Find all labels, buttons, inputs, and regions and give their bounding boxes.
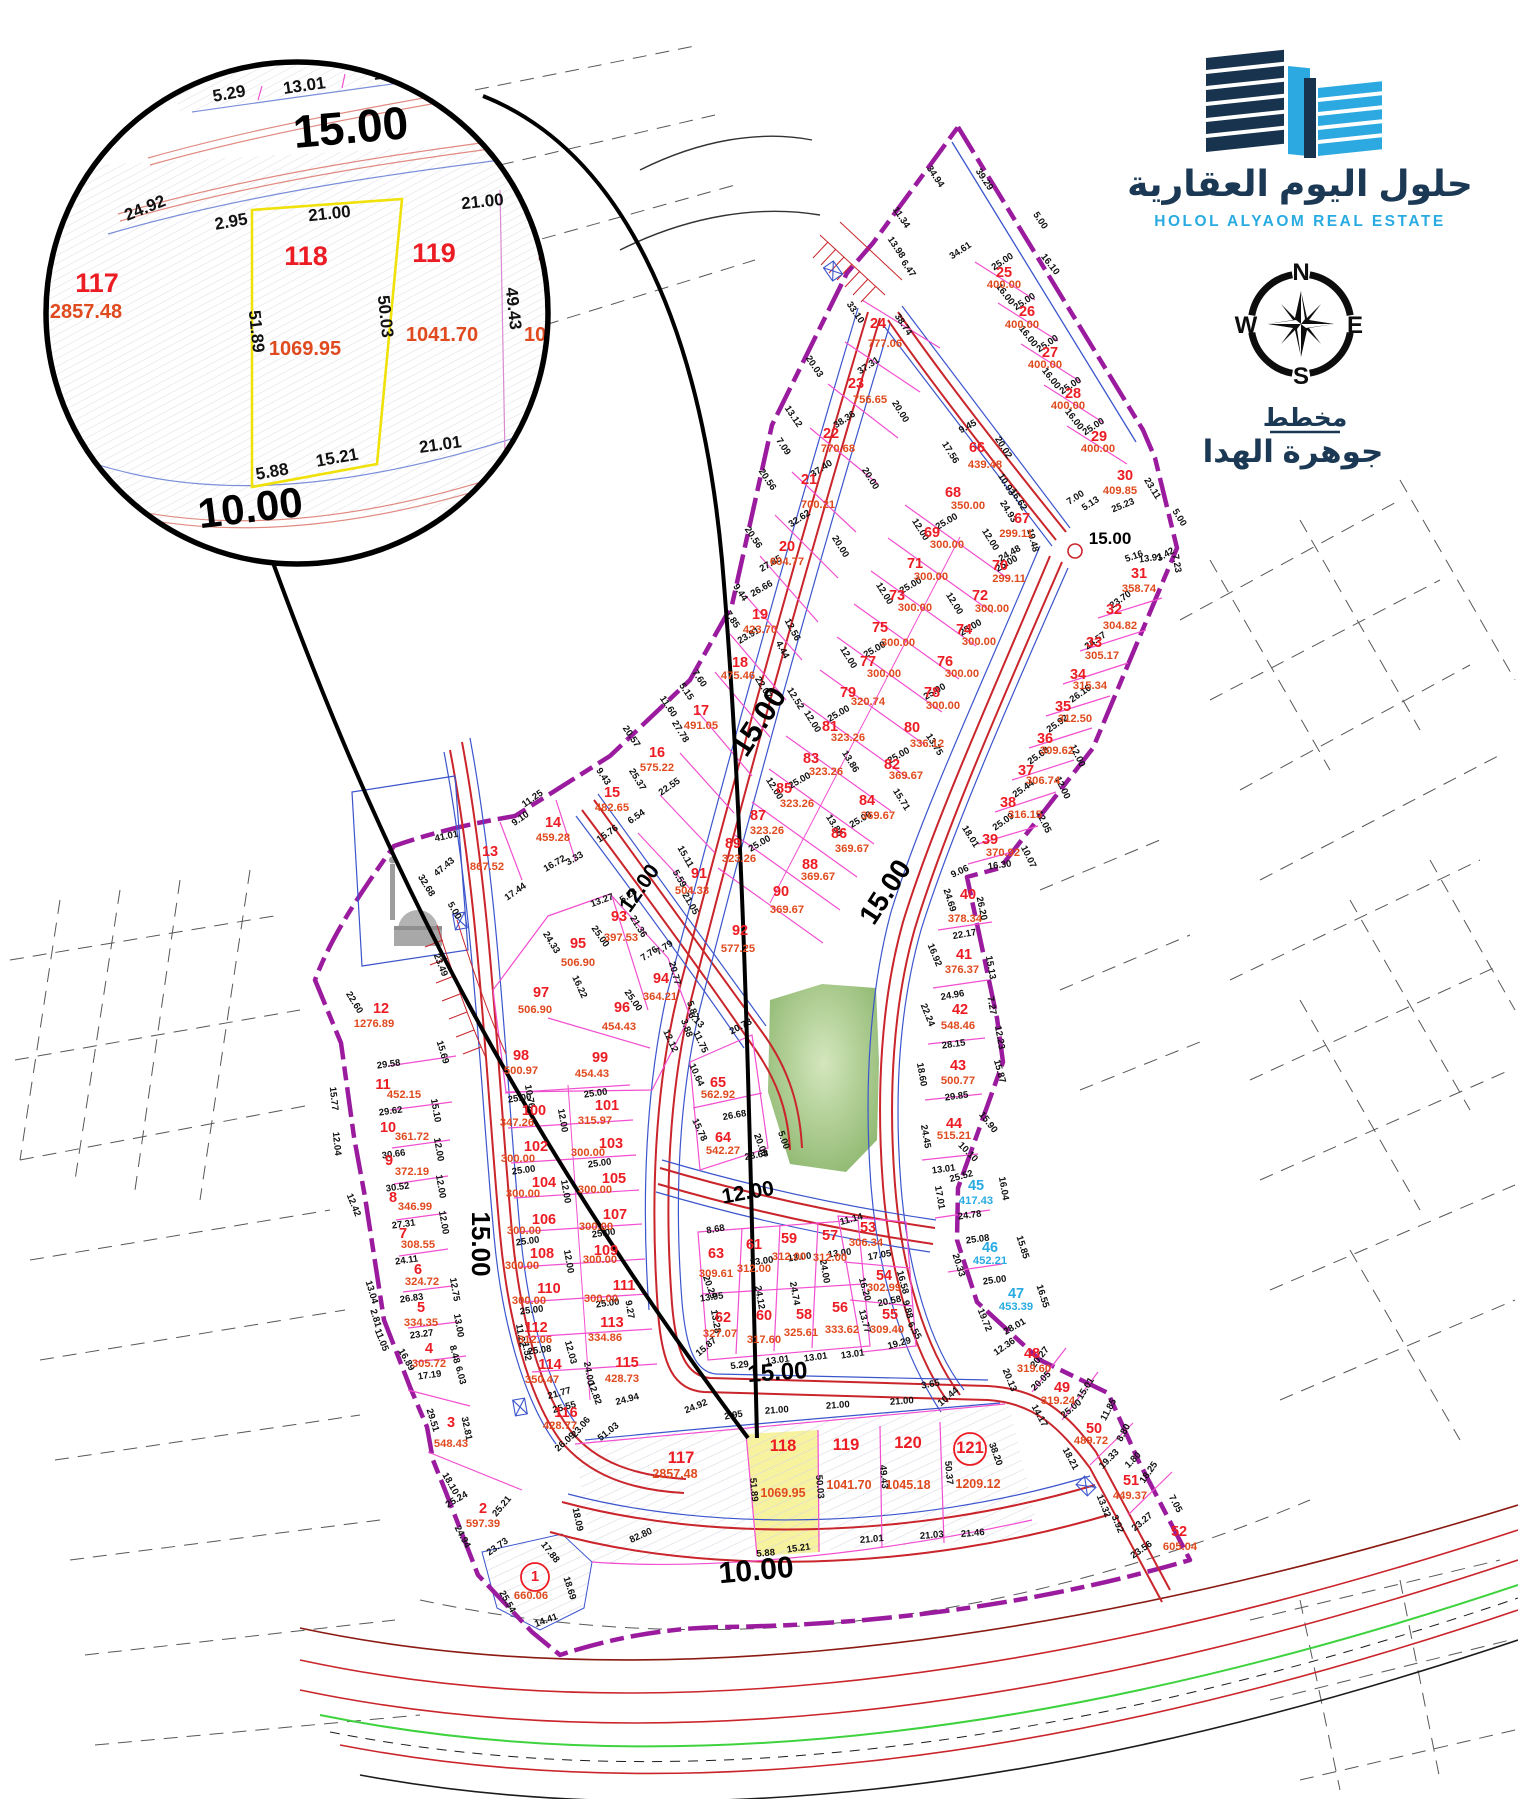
plot-area: 756.65 — [853, 394, 887, 406]
plot-area: 316.15 — [1008, 809, 1042, 821]
plot-area: 300.00 — [506, 1188, 540, 1200]
plot-number: 71 — [907, 556, 923, 572]
plot-area: 300.00 — [584, 1293, 618, 1305]
plot-number: 121 — [956, 1439, 984, 1457]
plot-area: 506.90 — [561, 957, 595, 969]
plot-number: 80 — [904, 720, 920, 736]
plot-area: 361.72 — [395, 1131, 429, 1143]
plot-number: 90 — [773, 884, 789, 900]
parking-rows-apex — [813, 222, 902, 302]
plot-area: 376.37 — [945, 964, 979, 976]
dimension-label: 15.85 — [1013, 1234, 1031, 1261]
plot-number: 56 — [832, 1300, 848, 1316]
dimension-label: 22.17 — [952, 927, 977, 942]
company-logo: حلول اليوم العقارية HOLOL ALYAOM REAL ES… — [1127, 50, 1473, 230]
dimension-label: 34.61 — [948, 239, 975, 262]
plot-number: 4 — [425, 1341, 433, 1357]
plot-number: 68 — [945, 485, 961, 501]
compass-north: N — [1292, 259, 1309, 286]
inset-plot-number: 117 — [75, 268, 119, 298]
logo-buildings-icon — [1206, 50, 1382, 158]
dimension-label: 51.89 — [747, 1477, 760, 1502]
plot-area: 475.46 — [721, 670, 755, 682]
dimension-label: 24.94 — [614, 1391, 641, 1408]
dimension-label: 9.10 — [510, 809, 531, 829]
plot-label-23: 23756.65 — [848, 376, 887, 406]
street-width-label: 15.00 — [747, 1357, 809, 1388]
dimension-label: 6.54 — [626, 807, 648, 827]
plot-area: 346.99 — [398, 1201, 432, 1213]
dimension-label: 12.00 — [837, 645, 859, 671]
plot-area: 327.07 — [703, 1328, 737, 1340]
plot-area: 482.65 — [595, 802, 629, 814]
plot-area: 1045.18 — [885, 1478, 930, 1492]
dimension-label: 50.37 — [942, 1460, 955, 1485]
logo-english-name: HOLOL ALYAOM REAL ESTATE — [1154, 213, 1445, 230]
plot-number: 95 — [570, 936, 586, 952]
plot-label-76: 76300.00 — [937, 654, 979, 680]
plot-number: 48 — [1024, 1346, 1040, 1362]
plot-area: 309.61 — [699, 1268, 733, 1280]
dimension-label: 24.69 — [940, 887, 958, 913]
plot-label-81: 81323.26 — [822, 719, 865, 744]
dimension-label: 20.02 — [992, 435, 1014, 461]
plot-area: 300.00 — [945, 668, 979, 680]
plot-number: 30 — [1117, 468, 1133, 484]
plot-label-63: 63309.61 — [699, 1246, 733, 1280]
plot-label-15: 15482.65 — [595, 785, 629, 814]
plot-area: 506.90 — [518, 1004, 552, 1016]
plot-area: 299.11 — [992, 573, 1026, 585]
plot-number: 86 — [831, 826, 847, 842]
dimension-label: 24.78 — [957, 1208, 982, 1222]
dimension-label: 16.04 — [996, 1176, 1011, 1202]
dimension-label: 4.44 — [773, 639, 792, 661]
plot-number: 24 — [870, 316, 886, 332]
plot-label-22: 22770.68 — [821, 426, 855, 455]
plot-area: 504.33 — [675, 885, 709, 897]
dimension-label: 12.42 — [344, 1192, 363, 1218]
dimension-label: 6.47 — [898, 258, 917, 279]
plot-number: 31 — [1131, 566, 1147, 582]
dimension-label: 47.43 — [432, 855, 457, 879]
plot-label-44: 44515.21 — [937, 1116, 971, 1142]
inset-plot-area: 2857.48 — [50, 301, 122, 323]
plot-area: 378.34 — [948, 913, 983, 925]
dimension-label: 21.00 — [765, 1404, 789, 1417]
plot-label-19: 19423.70 — [743, 607, 777, 636]
plot-label-17: 17491.05 — [684, 703, 718, 732]
plot-area: 369.67 — [770, 904, 804, 916]
plot-label-42: 42548.46 — [941, 1002, 975, 1032]
dimension-label: 26.66 — [749, 578, 775, 599]
plot-number: 22 — [823, 426, 839, 442]
plot-label-27: 27400.00 — [1028, 345, 1062, 371]
dimension-label: 3.65 — [921, 1377, 942, 1391]
dimension-label: 16.92 — [925, 942, 944, 968]
street-width-label: 10.00 — [717, 1551, 795, 1590]
plot-number: 20 — [779, 539, 795, 555]
plot-area: 489.72 — [1074, 1435, 1108, 1447]
plot-label-108: 108300.00 — [505, 1246, 554, 1272]
plot-number: 83 — [803, 751, 819, 767]
plot-label-88: 88369.67 — [801, 857, 835, 883]
plot-area: 452.21 — [973, 1255, 1007, 1267]
plot-number: 9 — [385, 1153, 393, 1169]
plot-label-7: 7308.55 — [399, 1226, 435, 1251]
plot-area: 364.21 — [643, 991, 677, 1003]
plot-number: 96 — [614, 1000, 630, 1016]
plot-number: 119 — [833, 1436, 860, 1454]
dimension-label: 21.03 — [919, 1529, 944, 1542]
plot-area: 491.05 — [684, 720, 718, 732]
plot-area: 323.26 — [780, 798, 814, 810]
plot-number: 117 — [668, 1449, 695, 1467]
plot-area: 1041.70 — [826, 1478, 871, 1492]
dimension-label: 20.00 — [889, 399, 911, 425]
dimension-label: 12.00 — [433, 1174, 448, 1199]
plot-number: 19 — [752, 607, 768, 623]
plot-number: 115 — [615, 1355, 638, 1371]
plot-label-90: 90369.67 — [770, 884, 804, 916]
plot-label-106: 106300.00 — [507, 1212, 556, 1237]
plan-title: مخطط جوهرة الهدا — [1203, 404, 1384, 470]
dimension-label: 12.00 — [979, 527, 1001, 553]
plot-number: 46 — [982, 1240, 998, 1256]
plot-area: 417.43 — [959, 1195, 993, 1207]
plot-area: 300.00 — [962, 636, 996, 648]
plot-area: 334.35 — [404, 1317, 438, 1329]
plot-number: 75 — [872, 620, 888, 636]
plot-area: 400.00 — [1028, 359, 1062, 371]
plot-number: 5 — [417, 1300, 425, 1316]
bottom-highway — [300, 1505, 1518, 1799]
inset-plot-number: 118 — [284, 241, 328, 271]
plot-area: 400.00 — [987, 279, 1021, 291]
plot-label-41: 41376.37 — [945, 947, 979, 976]
dimension-label: 15.87 — [991, 1058, 1008, 1084]
plot-number: 113 — [600, 1315, 623, 1331]
dimension-label: 18.01 — [959, 824, 981, 851]
plot-number: 40 — [960, 887, 976, 903]
plot-number: 13 — [482, 844, 498, 860]
dimension-label: 12.12 — [660, 1028, 680, 1054]
plot-label-50: 50489.72 — [1074, 1421, 1108, 1447]
dimension-label: 13.98 — [885, 235, 907, 261]
plot-area: 452.15 — [387, 1089, 421, 1101]
plot-number: 53 — [860, 1220, 876, 1236]
plot-label-101: 101315.97 — [578, 1098, 619, 1127]
plot-number: 41 — [956, 947, 972, 963]
dimension-label: 15.78 — [689, 1117, 709, 1143]
plot-label-99: 99454.43 — [575, 1050, 609, 1080]
plot-number: 8 — [389, 1190, 397, 1206]
plot-area: 369.67 — [861, 810, 895, 822]
plot-area: 319.24 — [1041, 1395, 1076, 1407]
plot-area: 300.00 — [881, 637, 915, 649]
dimension-label: 24.96 — [940, 988, 965, 1003]
plot-label-62: 62327.07 — [703, 1310, 737, 1340]
plot-area: 542.27 — [706, 1145, 740, 1157]
compass-east: E — [1347, 312, 1363, 339]
plot-area: 439.48 — [968, 459, 1002, 471]
plot-number: 62 — [715, 1310, 731, 1326]
plot-area: 372.19 — [395, 1166, 429, 1178]
plot-area: 312.00 — [813, 1252, 847, 1264]
compass-west: W — [1235, 312, 1258, 339]
dimension-label: 15.77 — [327, 1086, 340, 1111]
plot-area: 304.82 — [1103, 620, 1137, 632]
dimension-label: 13.00 — [451, 1313, 466, 1338]
dimension-label: 7.05 — [1166, 1493, 1185, 1515]
plot-number: 57 — [822, 1228, 838, 1244]
plot-number: 84 — [859, 793, 875, 809]
dimension-label: 7.23 — [1169, 554, 1183, 574]
plan-title-label: مخطط — [1263, 404, 1348, 432]
inset-plot-area: 1041.70 — [406, 324, 478, 346]
plot-label-107: 107300.00 — [579, 1207, 627, 1233]
dimension-label: 25.00 — [982, 1273, 1007, 1287]
plot-area: 350.47 — [525, 1374, 559, 1386]
plot-label-113: 113334.86 — [588, 1315, 624, 1344]
plot-area: 370.92 — [986, 847, 1020, 859]
dimension-label: 17.56 — [939, 440, 961, 466]
plot-label-10: 10361.72 — [380, 1120, 429, 1143]
plot-area: 770.68 — [821, 443, 855, 455]
plot-label-98: 98500.97 — [504, 1048, 538, 1077]
plot-area: 300.00 — [898, 602, 932, 614]
plot-area: 333.62 — [825, 1324, 859, 1336]
plot-area: 369.67 — [801, 871, 835, 883]
inset-plot-area: 1069.95 — [269, 338, 341, 360]
dimension-label: 10.64 — [686, 1062, 706, 1089]
plot-area: 308.55 — [401, 1239, 435, 1251]
plot-number: 58 — [796, 1307, 812, 1323]
plot-area: 400.00 — [1005, 319, 1039, 331]
plot-number: 72 — [972, 588, 988, 604]
plot-number: 23 — [848, 376, 864, 392]
dimension-label: 6.03 — [453, 1365, 468, 1386]
plot-area: 320.74 — [851, 696, 886, 708]
plot-number: 94 — [653, 971, 669, 987]
dimension-label: 7.27 — [984, 996, 998, 1016]
dimension-label: 18.21 — [1060, 1446, 1081, 1473]
plot-area: 428.73 — [605, 1373, 639, 1385]
plot-area: 305.17 — [1085, 650, 1119, 662]
plot-number: 70 — [992, 558, 1008, 574]
plot-number: 17 — [693, 703, 709, 719]
plot-label-32: 32304.82 — [1103, 602, 1137, 632]
plot-area: 300.00 — [579, 1221, 613, 1233]
plot-label-39: 39370.92 — [982, 832, 1020, 859]
dimension-label: 28.01 — [1002, 1316, 1029, 1338]
plot-label-65: 65562.92 — [701, 1075, 735, 1101]
dimension-label: 12.00 — [436, 1210, 451, 1235]
dimension-label: 12.56 — [782, 617, 803, 643]
plot-number: 15 — [604, 785, 620, 801]
dimension-label: 34.94 — [924, 164, 947, 190]
plot-area: 323.26 — [831, 732, 865, 744]
dimension-label: 28.15 — [941, 1037, 967, 1051]
plot-area: 347.26 — [500, 1117, 534, 1129]
plot-number: 39 — [982, 832, 998, 848]
plot-area: 409.85 — [1103, 485, 1137, 497]
plot-area: 700.21 — [801, 499, 835, 511]
plot-area: 1209.12 — [955, 1477, 1000, 1491]
dimension-label: 23.27 — [1130, 1510, 1155, 1534]
plot-area: 562.92 — [701, 1089, 735, 1101]
plot-number: 51 — [1123, 1473, 1139, 1489]
dimension-label: 24.92 — [683, 1397, 709, 1416]
dimension-label: 5.00 — [445, 900, 464, 922]
dimension-label: 2.95 — [724, 1408, 745, 1422]
plot-area: 300.00 — [571, 1147, 605, 1159]
plot-area: 605.04 — [1163, 1541, 1198, 1553]
plot-label-95: 95506.90 — [561, 936, 595, 969]
dimension-label: 13.32 — [1094, 1493, 1113, 1519]
plot-area: 300.00 — [975, 603, 1009, 615]
plot-number: 93 — [611, 909, 627, 925]
plot-label-116: 116428.77 — [543, 1405, 578, 1432]
plot-number: 33 — [1086, 635, 1102, 651]
plot-area: 334.86 — [588, 1332, 622, 1344]
dimension-label: 26.68 — [722, 1108, 747, 1123]
plot-number: 66 — [969, 440, 985, 456]
dimension-label: 17.44 — [503, 880, 529, 903]
dimension-label: 33.10 — [844, 300, 866, 326]
dimension-label: 16.72 — [542, 853, 568, 874]
plot-area: 575.22 — [640, 762, 674, 774]
plot-area: 449.37 — [1113, 1490, 1147, 1502]
dimension-label: 20.00 — [829, 534, 851, 560]
plan-title-name: جوهرة الهدا — [1203, 434, 1384, 470]
dimension-label: 24.00 — [581, 1361, 596, 1386]
plot-label-80: 80336.12 — [904, 720, 944, 750]
plot-label-30: 30409.85 — [1103, 468, 1137, 497]
plot-number: 10 — [380, 1120, 396, 1136]
dimension-label: 24.33 — [540, 930, 562, 956]
plot-area: 300.00 — [914, 571, 948, 583]
dimension-label: 50.03 — [813, 1474, 826, 1499]
plot-label-105: 105300.00 — [578, 1171, 626, 1196]
dimension-label: 20.57 — [620, 724, 642, 750]
dimension-label: 29.58 — [376, 1057, 401, 1071]
compass-rose: N E S W — [1235, 259, 1363, 390]
dimension-label: 13.12 — [782, 404, 804, 430]
plot-number: 1 — [531, 1569, 539, 1585]
dimension-label: 20.78 — [728, 1016, 754, 1037]
plot-area: 777.06 — [868, 338, 902, 350]
plot-area: 548.46 — [941, 1020, 975, 1032]
dimension-label: 17.19 — [417, 1368, 442, 1382]
plot-area: 500.97 — [504, 1065, 538, 1077]
plot-number: 12 — [373, 1001, 389, 1017]
dimension-label: 24.45 — [918, 1124, 933, 1150]
background-roads-top — [620, 136, 820, 250]
plot-number: 16 — [649, 745, 665, 761]
plot-label-97: 97506.90 — [518, 985, 552, 1016]
dimension-label: 25.21 — [490, 1493, 514, 1519]
dimension-label: 3.92 — [1109, 1513, 1126, 1534]
plot-area: 312.06 — [518, 1334, 552, 1346]
plot-label-20: 20604.77 — [770, 539, 804, 568]
plot-label-83: 83323.26 — [803, 751, 843, 778]
dimension-label: 32.68 — [415, 873, 437, 899]
plot-label-8: 8346.99 — [389, 1190, 432, 1213]
plot-number: 26 — [1019, 304, 1035, 320]
logo-arabic-name: حلول اليوم العقارية — [1127, 163, 1473, 205]
plot-label-77: 77300.00 — [860, 654, 901, 680]
plot-area: 515.21 — [937, 1130, 971, 1142]
dimension-label: 13.27 — [589, 891, 615, 909]
dimension-label: 5.00 — [1030, 210, 1049, 231]
plot-area: 660.06 — [514, 1590, 548, 1602]
dimension-label: 20.33 — [949, 1252, 967, 1278]
plot-area: 324.72 — [405, 1276, 439, 1288]
dimension-label: 22.60 — [343, 990, 365, 1016]
street-width-label: 12.00 — [720, 1177, 776, 1209]
plot-label-28: 28400.00 — [1051, 386, 1085, 412]
plot-area: 312.50 — [1058, 713, 1092, 725]
plot-area: 309.62 — [1040, 745, 1074, 757]
plot-number: 21 — [801, 472, 817, 488]
dimension-label: 13.95 — [699, 1290, 725, 1304]
plot-area: 428.77 — [543, 1420, 577, 1432]
plot-number: 99 — [592, 1050, 608, 1066]
compass-south: S — [1293, 363, 1309, 390]
dimension-label: 12.04 — [330, 1131, 343, 1157]
plot-area: 604.77 — [770, 556, 804, 568]
plot-number: 120 — [894, 1434, 922, 1452]
dimension-label: 15.69 — [434, 1039, 451, 1065]
plot-label-72: 72300.00 — [972, 588, 1009, 615]
dimension-label: 18.09 — [570, 1507, 586, 1533]
plot-label-18: 18475.46 — [721, 655, 755, 682]
plot-area: 459.28 — [536, 832, 570, 844]
plot-number: 91 — [691, 866, 707, 882]
dimension-label: 24.74 — [787, 1281, 802, 1307]
plot-number: 67 — [1014, 511, 1030, 527]
dimension-label: 11.34 — [890, 205, 913, 231]
dimension-label: 20.00 — [859, 466, 881, 492]
dimension-label: 16.55 — [1033, 1283, 1051, 1310]
plot-number: 47 — [1008, 1286, 1024, 1302]
dimension-label: 13.01 — [803, 1350, 829, 1364]
dimension-label: 22.24 — [918, 1002, 937, 1029]
plot-area: 397.53 — [604, 932, 638, 944]
dimension-label: 17.01 — [932, 1185, 947, 1211]
plot-area: 548.43 — [434, 1438, 468, 1450]
plot-label-92: 92577.25 — [721, 923, 755, 955]
plot-number: 98 — [513, 1048, 529, 1064]
dimension-label: 19.33 — [1097, 1447, 1122, 1472]
plot-area: 300.00 — [501, 1153, 535, 1165]
dimension-label: 21.01 — [859, 1533, 884, 1546]
plot-number: 42 — [952, 1002, 968, 1018]
plot-area: 312.00 — [772, 1251, 806, 1263]
dimension-label: 12.75 — [447, 1277, 462, 1303]
dimension-label: 12.00 — [943, 591, 965, 617]
plot-area: 315.34 — [1073, 680, 1108, 692]
dimension-label: 20.03 — [803, 354, 825, 380]
plot-number: 89 — [725, 836, 741, 852]
dimension-label: 19.72 — [975, 1307, 994, 1333]
street-width-label: 15.00 — [1089, 529, 1132, 548]
plot-label-68: 68350.00 — [945, 485, 985, 512]
plot-area: 500.77 — [941, 1075, 975, 1087]
plot-label-86: 86369.67 — [831, 826, 869, 855]
plot-area: 336.12 — [910, 738, 944, 750]
